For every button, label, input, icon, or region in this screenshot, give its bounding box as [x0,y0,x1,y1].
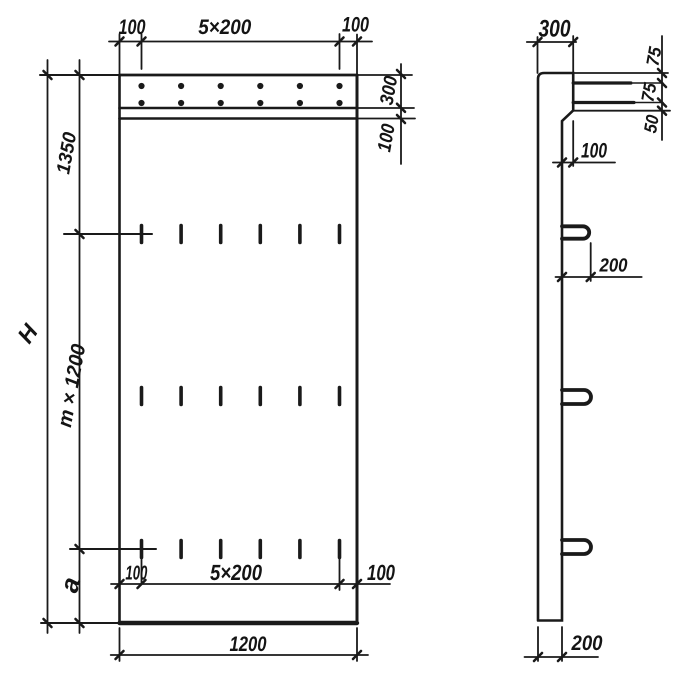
svg-text:200: 200 [599,256,628,277]
svg-text:100: 100 [125,563,147,585]
svg-text:5×200: 5×200 [198,16,251,39]
svg-text:300: 300 [377,74,403,107]
svg-text:75: 75 [638,80,661,103]
svg-text:5×200: 5×200 [210,560,263,585]
svg-text:100: 100 [374,122,400,154]
svg-text:a: a [54,574,87,596]
svg-text:300: 300 [539,15,572,42]
svg-text:100: 100 [342,14,369,37]
svg-text:m × 1200: m × 1200 [54,342,90,429]
svg-text:100: 100 [367,560,396,585]
svg-text:1350: 1350 [53,130,81,175]
svg-text:50: 50 [640,113,663,134]
svg-text:100: 100 [581,140,607,163]
svg-text:1200: 1200 [230,633,267,656]
svg-text:200: 200 [571,632,603,655]
svg-text:100: 100 [119,16,146,39]
svg-text:H: H [12,319,43,348]
